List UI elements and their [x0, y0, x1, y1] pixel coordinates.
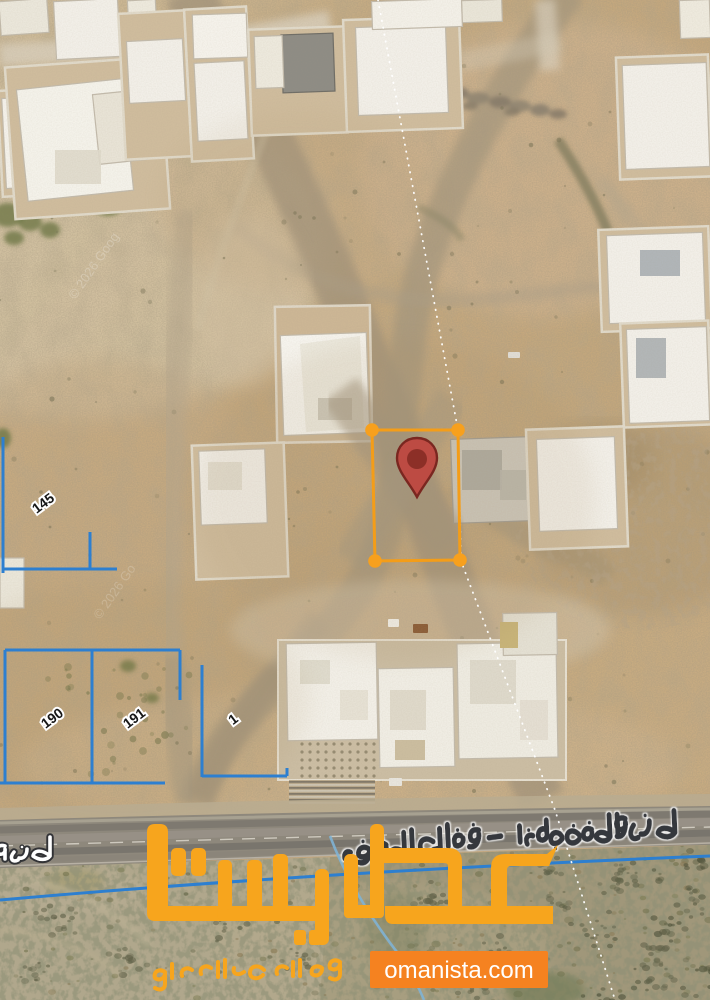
svg-text:omanista.com: omanista.com	[384, 957, 533, 984]
